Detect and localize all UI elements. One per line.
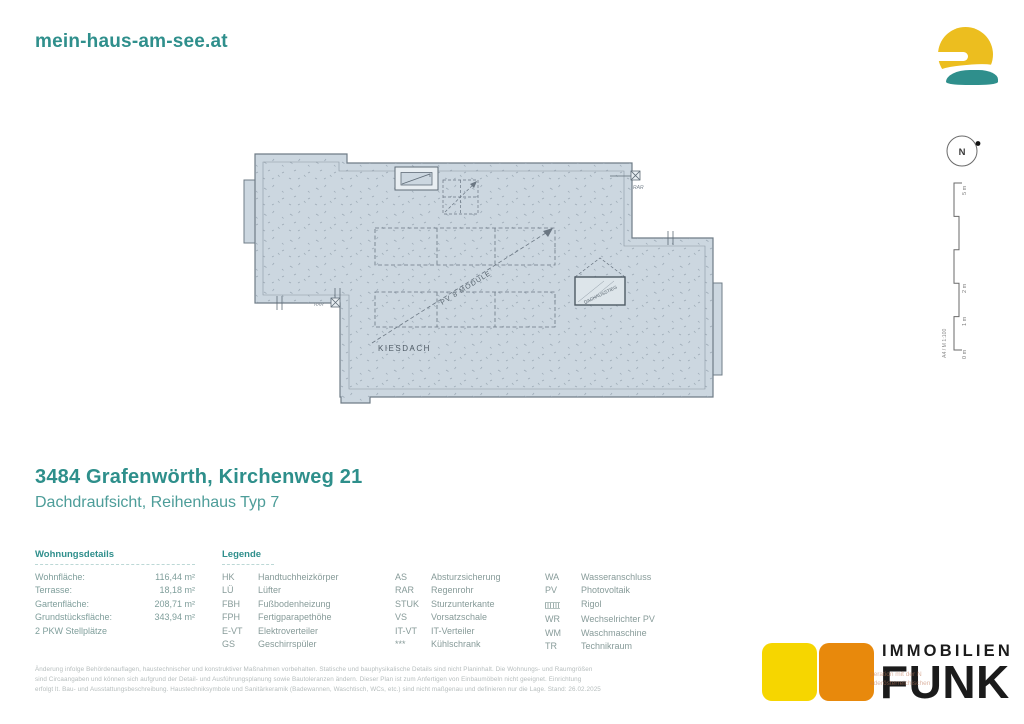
legend-term: Sturzunterkante <box>431 598 545 611</box>
legend-row: STUKSturzunterkante <box>395 598 545 611</box>
legend-column-3: WAWasseranschluss PVPhotovoltaik Rigol W… <box>545 571 715 653</box>
details-header: Wohnungsdetails <box>35 549 195 565</box>
funk-watermark-line-1: peration mit der N <box>870 671 930 680</box>
detail-row: Wohnfläche: 116,44 m² <box>35 571 195 584</box>
legend-row: FBHFußbodenheizung <box>222 598 395 611</box>
funk-yellow-square-icon <box>762 643 817 701</box>
legend-abbr: AS <box>395 571 431 584</box>
scalebar-label-5m: 5 m <box>962 185 968 195</box>
right-wall-bump <box>713 283 722 375</box>
funk-watermark-line-2: ederösterreichischen <box>870 680 930 689</box>
roof-surface-label: KIESDACH <box>378 344 431 353</box>
legend-term: Kühlschrank <box>431 638 545 651</box>
legend-term: Vorsatzschale <box>431 611 545 624</box>
legend-row: VSVorsatzschale <box>395 611 545 624</box>
legend: Legende HKHandtuchheizkörper LÜLüfter FB… <box>222 549 782 653</box>
detail-row: Grundstücksfläche: 343,94 m² <box>35 611 195 624</box>
funk-watermark-text: peration mit der N ederösterreichischen <box>870 671 930 688</box>
scalebar-label-0m: 0 m <box>962 349 968 359</box>
logo-notch-shape <box>937 52 968 61</box>
legend-row: HKHandtuchheizkörper <box>222 571 395 584</box>
legend-abbr: FBH <box>222 598 258 611</box>
legend-row: WAWasseranschluss <box>545 571 715 584</box>
legend-term: Waschmaschine <box>581 627 715 640</box>
legend-term: Geschirrspüler <box>258 638 395 651</box>
compass-north-label: N <box>959 147 966 158</box>
legend-term: Absturzsicherung <box>431 571 545 584</box>
legend-abbr: LÜ <box>222 584 258 597</box>
legend-term: Fertigparapethöhe <box>258 611 395 624</box>
detail-value: 343,94 m² <box>154 611 195 624</box>
plan-sheet-page: mein-haus-am-see.at N 5 m 2 m 1 m 0 m A4… <box>0 0 1024 724</box>
detail-label: Wohnfläche: <box>35 571 85 584</box>
funk-orange-square-icon <box>819 643 874 701</box>
legend-row: ***Kühlschrank <box>395 638 545 651</box>
immobilien-funk-logo: IMMOBILIEN FUNK peration mit der N ederö… <box>762 641 1012 707</box>
legend-row: ASAbsturzsicherung <box>395 571 545 584</box>
legend-term: Photovoltaik <box>581 584 715 597</box>
legend-row: GSGeschirrspüler <box>222 638 395 651</box>
legend-header: Legende <box>222 549 274 565</box>
disclaimer-line-1: Änderung infolge Behördenauflagen, haust… <box>35 665 675 675</box>
legend-row: E-VTElektroverteiler <box>222 625 395 638</box>
roof-plan-drawing: PV 8 MODULE DACHAUSSTIEG RAR RAR KIESDAC… <box>235 135 740 410</box>
legend-abbr: TR <box>545 640 581 653</box>
legend-abbr <box>545 598 581 613</box>
legend-term: Elektroverteiler <box>258 625 395 638</box>
detail-label: Terrasse: <box>35 584 72 597</box>
scalebar-label-2m: 2 m <box>962 283 968 293</box>
legend-abbr: *** <box>395 638 431 651</box>
detail-row: Terrasse: 18,18 m² <box>35 584 195 597</box>
legend-abbr: E-VT <box>222 625 258 638</box>
scalebar-format-note: A4 / M 1:100 <box>942 328 948 358</box>
legend-columns: HKHandtuchheizkörper LÜLüfter FBHFußbode… <box>222 571 782 653</box>
legend-abbr: FPH <box>222 611 258 624</box>
disclaimer-text: Änderung infolge Behördenauflagen, haust… <box>35 665 675 695</box>
legend-row: WRWechselrichter PV <box>545 613 715 626</box>
rain-pipe-label-top: RAR <box>633 185 644 191</box>
scalebar-label-1m: 1 m <box>962 316 968 326</box>
skylight-vent <box>395 167 438 190</box>
legend-abbr: GS <box>222 638 258 651</box>
legend-row: LÜLüfter <box>222 584 395 597</box>
legend-term: Wasseranschluss <box>581 571 715 584</box>
legend-abbr: IT-VT <box>395 625 431 638</box>
legend-row: IT-VTIT-Verteiler <box>395 625 545 638</box>
legend-row: RARRegenrohr <box>395 584 545 597</box>
legend-column-1: HKHandtuchheizkörper LÜLüfter FBHFußbode… <box>222 571 395 653</box>
legend-row: FPHFertigparapethöhe <box>222 611 395 624</box>
rigol-hatch-icon <box>545 602 560 609</box>
legend-abbr: RAR <box>395 584 431 597</box>
scalebar-line <box>954 183 962 350</box>
detail-row: Gartenfläche: 208,71 m² <box>35 598 195 611</box>
sun-over-water-logo-icon <box>938 27 1000 85</box>
legend-abbr: WR <box>545 613 581 626</box>
legend-row: WMWaschmaschine <box>545 627 715 640</box>
detail-label: Gartenfläche: <box>35 598 89 611</box>
disclaimer-line-3: erfolgt lt. Bau- und Ausstattungsbeschre… <box>35 685 675 695</box>
parking-note: 2 PKW Stellplätze <box>35 625 195 638</box>
compass-and-scalebar: N 5 m 2 m 1 m 0 m A4 / M 1:100 <box>933 125 1011 373</box>
legend-term: Fußbodenheizung <box>258 598 395 611</box>
legend-row: PVPhotovoltaik <box>545 584 715 597</box>
legend-row: TRTechnikraum <box>545 640 715 653</box>
left-wall-bump <box>244 180 255 243</box>
detail-value: 18,18 m² <box>159 584 195 597</box>
title-block: 3484 Grafenwörth, Kirchenweg 21 Dachdrau… <box>35 466 362 512</box>
page-subtitle: Dachdraufsicht, Reihenhaus Typ 7 <box>35 494 362 512</box>
legend-term: Regenrohr <box>431 584 545 597</box>
legend-term: Handtuchheizkörper <box>258 571 395 584</box>
legend-abbr: STUK <box>395 598 431 611</box>
disclaimer-line-2: sind Circaangaben und können sich aufgru… <box>35 675 675 685</box>
legend-term: IT-Verteiler <box>431 625 545 638</box>
legend-abbr: VS <box>395 611 431 624</box>
legend-row: Rigol <box>545 598 715 613</box>
logo-wave-shape <box>946 70 998 85</box>
rain-pipe-label-bottom: RAR <box>314 302 324 307</box>
legend-term: Lüfter <box>258 584 395 597</box>
apartment-details: Wohnungsdetails Wohnfläche: 116,44 m² Te… <box>35 549 195 638</box>
page-title: 3484 Grafenwörth, Kirchenweg 21 <box>35 466 362 489</box>
legend-term: Rigol <box>581 598 715 613</box>
legend-abbr: PV <box>545 584 581 597</box>
detail-value: 116,44 m² <box>155 571 195 584</box>
compass-dot-icon <box>976 141 981 146</box>
detail-label: Grundstücksfläche: <box>35 611 112 624</box>
legend-abbr: WM <box>545 627 581 640</box>
detail-value: 208,71 m² <box>154 598 195 611</box>
legend-term: Wechselrichter PV <box>581 613 715 626</box>
legend-abbr: WA <box>545 571 581 584</box>
legend-abbr: HK <box>222 571 258 584</box>
site-name: mein-haus-am-see.at <box>35 31 228 53</box>
legend-term: Technikraum <box>581 640 715 653</box>
legend-column-2: ASAbsturzsicherung RARRegenrohr STUKStur… <box>395 571 545 653</box>
